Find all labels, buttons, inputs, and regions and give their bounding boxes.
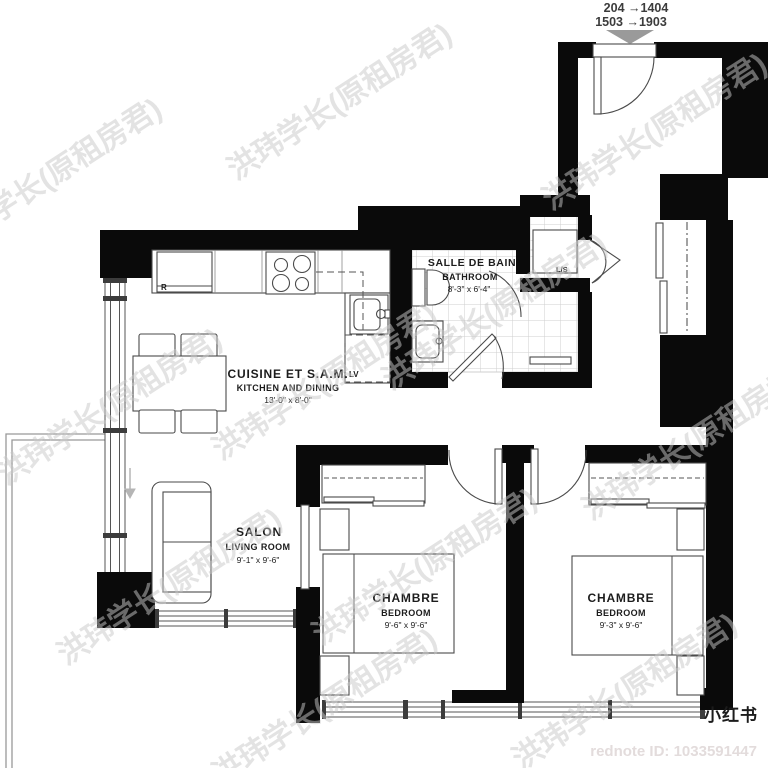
unit-numbers-line1: 204 →1404 [604,1,669,15]
unit-numbers-line2: 1503 →1903 [595,15,667,29]
living-south-window [155,609,297,628]
bedroom-2-dims: 9'-3" x 9'-6" [600,620,643,630]
rednote-id: rednote ID: 1033591447 [590,743,757,760]
floor-plan: SALLE DE BAIN BATHROOM 8'-3" x 6'-4" CUI… [0,0,768,768]
bedroom-1-door [449,449,502,504]
watermark: 洪玮学长(原租房君) [221,17,458,187]
stove [266,252,315,294]
fridge-label: R [161,283,167,292]
bathroom-dims: 8'-3" x 6'-4" [448,284,491,294]
entry-closet [656,220,706,335]
unit-header: 204 →1404 1503 →1903 [595,1,668,44]
half-wall [301,505,309,589]
balcony-arrow-icon [125,468,135,498]
entry-door [593,44,656,114]
bathroom-name-en: BATHROOM [442,272,498,282]
nightstand [320,509,349,550]
nightstand [677,509,704,550]
rednote-logo: 小红书 [704,705,758,725]
floor-plan-page: { "header": {"line1": "204 →1404", "line… [0,0,768,768]
bedroom-2-door [531,449,586,504]
bedroom-2-name-fr: CHAMBRE [588,591,655,605]
bedroom-1-closet [322,465,425,506]
west-window [103,278,127,620]
bathroom-name-fr: SALLE DE BAIN [428,257,516,269]
towel-bar [530,357,571,364]
entry-arrow-icon [606,30,654,44]
watermarks: 洪玮学长(原租房君) 洪玮学长(原租房君) 洪玮学长(原租房君) 洪玮学长(原租… [0,17,768,768]
bedroom-2-name-en: BEDROOM [596,608,646,618]
